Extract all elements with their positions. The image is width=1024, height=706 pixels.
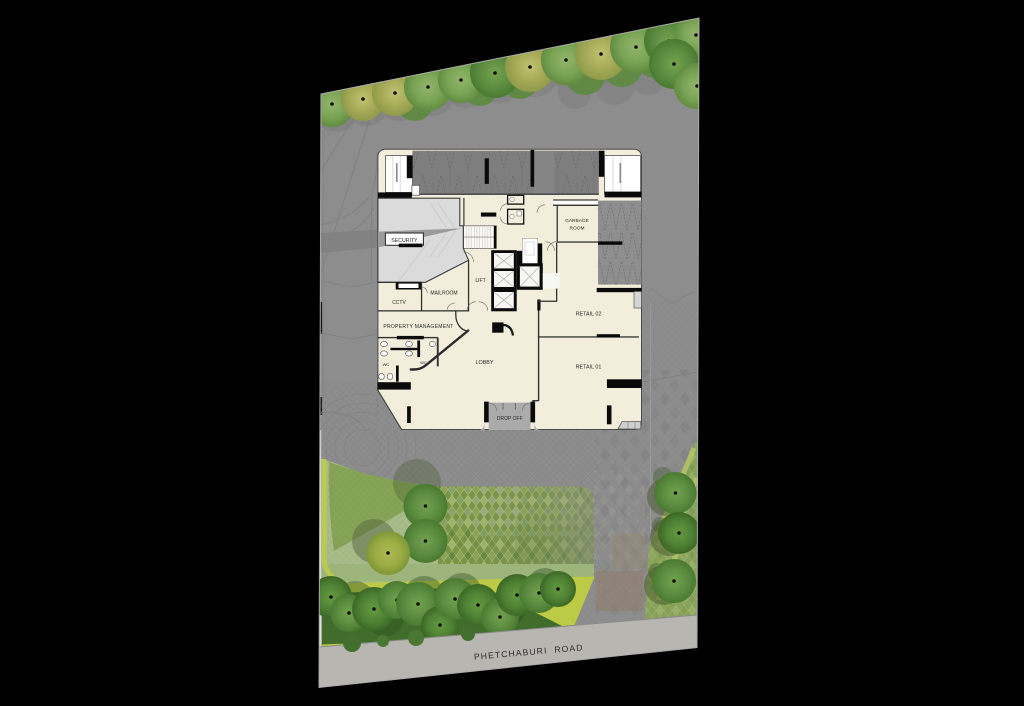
svg-text:RETAIL 02: RETAIL 02: [576, 312, 602, 318]
svg-text:WC: WC: [420, 360, 427, 365]
svg-text:LOBBY: LOBBY: [476, 360, 494, 366]
svg-text:MAILROOM: MAILROOM: [430, 291, 457, 297]
svg-text:PROPERTY MANAGEMENT: PROPERTY MANAGEMENT: [383, 324, 453, 330]
svg-text:SECURITY: SECURITY: [391, 238, 418, 244]
svg-text:GARBAGE: GARBAGE: [565, 218, 589, 224]
svg-text:DROP OFF: DROP OFF: [497, 416, 523, 422]
svg-text:ROOM: ROOM: [570, 226, 585, 232]
svg-text:CCTV: CCTV: [392, 300, 406, 306]
svg-text:RETAIL 01: RETAIL 01: [576, 365, 602, 371]
svg-text:WC: WC: [383, 362, 390, 367]
svg-text:LIFT: LIFT: [475, 278, 485, 284]
